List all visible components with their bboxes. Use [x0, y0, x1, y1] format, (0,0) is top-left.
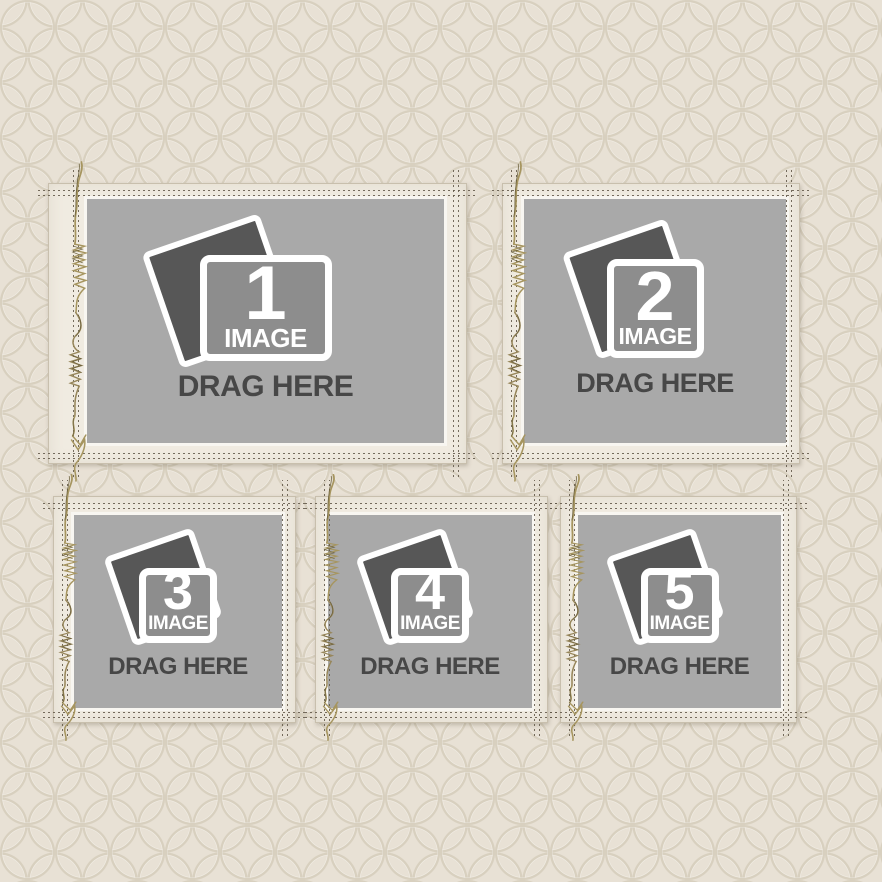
- image-dropzone-3[interactable]: 3 IMAGE DRAG HERE: [74, 515, 282, 708]
- drag-here-label: DRAG HERE: [610, 653, 750, 681]
- photo-frame-5: 5 IMAGE DRAG HERE: [560, 496, 797, 723]
- photo-stack-icon: 5 IMAGE: [641, 568, 719, 643]
- photo-stack-icon: 4 IMAGE: [391, 568, 469, 643]
- frame-number: 1: [244, 264, 286, 325]
- photo-frame-4: 4 IMAGE DRAG HERE: [315, 496, 548, 723]
- image-label: IMAGE: [148, 615, 208, 632]
- stitch-line-right: [534, 480, 540, 736]
- photo-front-icon: 2 IMAGE: [607, 259, 704, 358]
- image-label: IMAGE: [400, 615, 460, 632]
- image-label: IMAGE: [650, 615, 710, 632]
- stitch-line-top: [305, 503, 558, 509]
- stitch-line-bottom: [43, 712, 306, 718]
- stitch-line-top: [492, 190, 810, 196]
- photo-front-icon: 5 IMAGE: [641, 568, 719, 643]
- image-dropzone-5[interactable]: 5 IMAGE DRAG HERE: [578, 515, 781, 708]
- drag-here-label: DRAG HERE: [576, 368, 734, 399]
- frame-number: 4: [415, 570, 445, 613]
- stitch-line-bottom: [492, 453, 810, 459]
- thread-tangle-icon: [66, 160, 88, 483]
- photo-frame-2: 2 IMAGE DRAG HERE: [502, 183, 800, 464]
- photo-frame-1: 1 IMAGE DRAG HERE: [48, 183, 467, 464]
- photo-front-icon: 4 IMAGE: [391, 568, 469, 643]
- image-dropzone-2[interactable]: 2 IMAGE DRAG HERE: [524, 199, 786, 443]
- image-label: IMAGE: [224, 327, 307, 350]
- stitch-line-top: [550, 503, 807, 509]
- stitch-line-left: [569, 480, 575, 736]
- image-dropzone-4[interactable]: 4 IMAGE DRAG HERE: [328, 515, 532, 708]
- image-label: IMAGE: [619, 326, 692, 347]
- drag-here-label: DRAG HERE: [108, 653, 248, 681]
- drag-here-label: DRAG HERE: [360, 653, 500, 681]
- stitch-line-right: [783, 480, 789, 736]
- stitch-line-left: [73, 167, 79, 477]
- frame-number: 5: [664, 570, 694, 613]
- photo-stack-icon: 1 IMAGE: [200, 255, 332, 361]
- frame-number: 2: [636, 268, 675, 324]
- stitch-line-bottom: [305, 712, 558, 718]
- stitch-line-left: [511, 167, 517, 477]
- photo-frame-3: 3 IMAGE DRAG HERE: [53, 496, 296, 723]
- stitch-line-bottom: [38, 453, 477, 459]
- stitch-line-right: [786, 167, 792, 477]
- stitch-line-top: [43, 503, 306, 509]
- stitch-line-bottom: [550, 712, 807, 718]
- stitch-line-top: [38, 190, 477, 196]
- photo-front-icon: 3 IMAGE: [139, 568, 217, 643]
- photo-front-icon: 1 IMAGE: [200, 255, 332, 361]
- photo-stack-icon: 2 IMAGE: [607, 259, 704, 358]
- photo-stack-icon: 3 IMAGE: [139, 568, 217, 643]
- stitch-line-left: [62, 480, 68, 736]
- stitch-line-right: [453, 167, 459, 477]
- stitch-line-right: [282, 480, 288, 736]
- drag-here-label: DRAG HERE: [178, 370, 354, 404]
- frame-number: 3: [163, 570, 193, 613]
- image-dropzone-1[interactable]: 1 IMAGE DRAG HERE: [87, 199, 444, 443]
- scrapbook-canvas: 1 IMAGE DRAG HERE 2 IMAGE DRAG HERE: [0, 0, 882, 882]
